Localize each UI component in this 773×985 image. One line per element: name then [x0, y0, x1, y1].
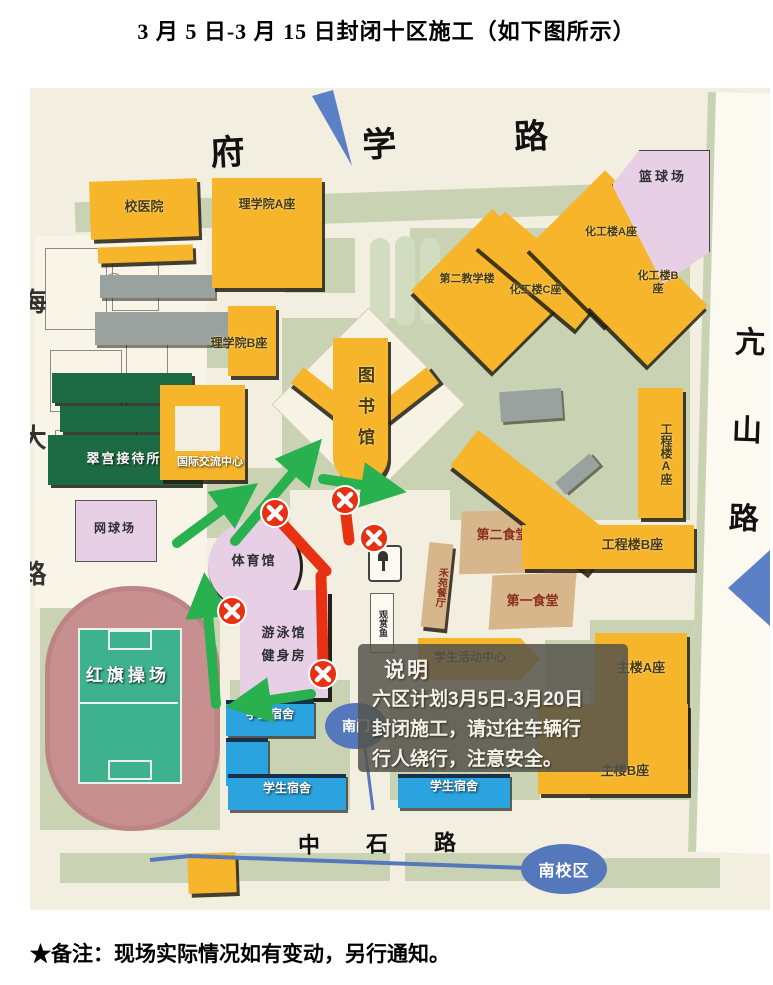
building-label-gym: 体育馆: [208, 554, 300, 569]
building-label-dorm: 学生宿舍: [398, 780, 510, 794]
building-label-science-a: 理学院A座: [212, 198, 322, 212]
trees: [395, 236, 415, 326]
building-swim: [240, 590, 328, 698]
intl-center-courtyard: [175, 406, 220, 451]
building-label-canteen1: 第一食堂: [485, 594, 580, 609]
building-label-intl-center: 国际交流中心: [156, 456, 264, 469]
note-line: 行人绕行，注意安全。: [372, 744, 622, 771]
fish-pond-label: 观赏鱼: [374, 596, 388, 650]
fountain-glyph: [378, 551, 388, 561]
note-line: 六区计划3月5日-3月20日: [372, 684, 622, 711]
building-label-hospital: 校医院: [90, 200, 198, 215]
note-line: 封闭施工，请过往车辆行: [372, 714, 622, 741]
building-label-science-b: 理学院B座: [178, 337, 300, 351]
closure-note: 说明 六区计划3月5日-3月20日 封闭施工，请过往车辆行 行人绕行，注意安全。: [358, 644, 628, 772]
gray-building: [100, 275, 215, 298]
south-campus-marker: 南校区: [521, 844, 607, 894]
note-heading: 说明: [384, 654, 430, 684]
building-label-fitness: 健身房: [240, 649, 328, 664]
campus-map: 海大路 府学路 亢山路 中石路 校医院 理学院A座 理学院B座 图书馆 化工楼A…: [30, 88, 770, 910]
building-label-chem-c: 化工楼C座: [488, 284, 583, 297]
south-road-label: 中石路: [298, 824, 503, 860]
building-label-swim: 游泳馆: [240, 626, 328, 641]
building-label-tennis: 网球场: [75, 522, 155, 536]
building-label-library: 图书馆: [348, 352, 374, 472]
east-road-label: 亢山路: [715, 325, 768, 590]
gray-building: [499, 388, 563, 422]
building-small: [187, 852, 236, 894]
building-small: [98, 244, 194, 263]
west-road-label: 海大路: [30, 288, 51, 696]
building-label-playground: 红旗操场: [48, 666, 208, 686]
fountain-glyph: [382, 561, 385, 571]
page-title: 3 月 5 日-3 月 15 日封闭十区施工（如下图所示）: [0, 14, 773, 46]
building-label-dorm: 学生宿舍: [228, 782, 346, 796]
building-label-basketball: 篮球场: [618, 170, 708, 185]
building-science-a: [212, 178, 322, 288]
field-goalbox: [108, 760, 152, 780]
building-label-chem-a: 化工楼A座: [565, 226, 657, 239]
building-label-eng-b: 工程楼B座: [575, 538, 690, 553]
building-label-chem-b: 化工楼B座: [635, 270, 681, 295]
building-label-dorm: 学生宿舍: [226, 708, 314, 722]
building-label-eng-a: 工程楼A座: [648, 402, 672, 506]
lawn: [60, 853, 200, 883]
field-goalbox: [108, 630, 152, 650]
footnote: ★备注：现场实际情况如有变动，另行通知。: [30, 938, 750, 968]
north-road-label: 府学路: [209, 102, 667, 175]
field-centerline: [80, 702, 178, 704]
